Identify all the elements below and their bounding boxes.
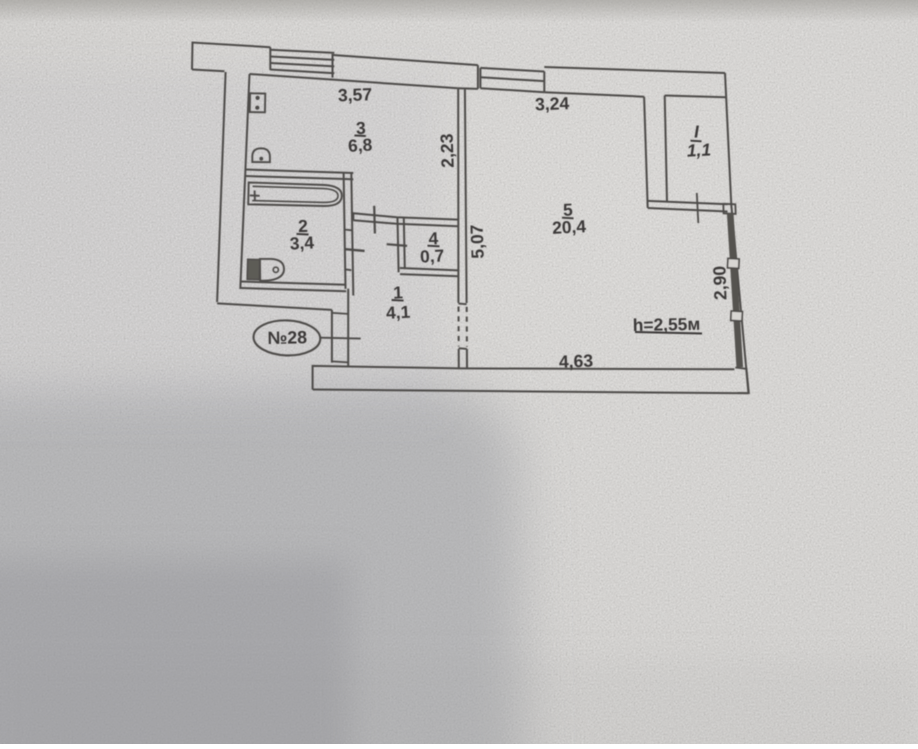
- svg-text:4,63: 4,63: [559, 351, 594, 372]
- svg-text:6,8: 6,8: [348, 135, 374, 156]
- svg-text:3,57: 3,57: [338, 84, 373, 105]
- svg-text:20,4: 20,4: [552, 216, 587, 238]
- svg-text:3,4: 3,4: [289, 232, 315, 253]
- svg-text:1,1: 1,1: [686, 139, 711, 160]
- svg-text:2,23: 2,23: [437, 133, 458, 168]
- svg-text:5,07: 5,07: [467, 224, 488, 259]
- svg-text:4,1: 4,1: [385, 302, 411, 323]
- svg-text:3,24: 3,24: [535, 93, 570, 114]
- svg-text:2,90: 2,90: [709, 265, 730, 300]
- svg-text:№28: №28: [267, 327, 307, 348]
- svg-text:0,7: 0,7: [420, 245, 445, 266]
